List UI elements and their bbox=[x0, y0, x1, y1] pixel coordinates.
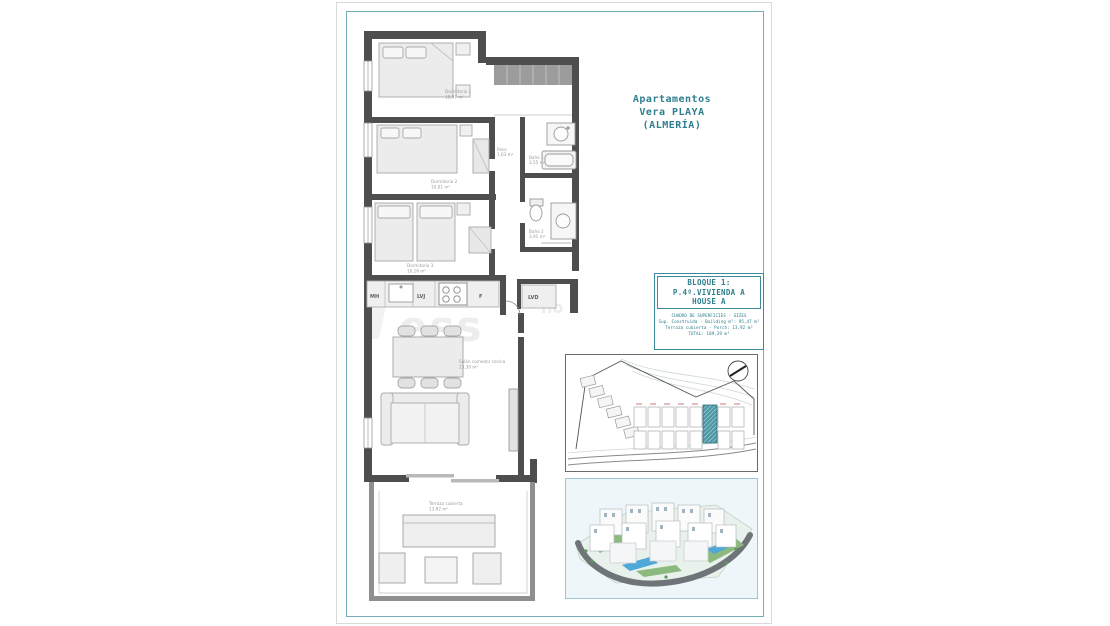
floor-plan-drawing: ess no bbox=[351, 23, 591, 611]
surface-table: CUADRO DE SUPERFICIES - SIZES Sup. Const… bbox=[655, 311, 763, 338]
terrace-furniture bbox=[379, 515, 501, 584]
hall-wardrobe bbox=[494, 65, 572, 115]
laundry-nook: LVD bbox=[522, 285, 556, 308]
project-title: Apartamentos Vera PLAYA (ALMERÍA) bbox=[592, 93, 752, 132]
paso-label: Paso 1,63 m² bbox=[497, 147, 514, 157]
terrace-label: Terraza cubierta 13,92 m² bbox=[428, 501, 463, 512]
svg-text:3,55 m²: 3,55 m² bbox=[529, 160, 546, 165]
highlighted-unit bbox=[703, 405, 717, 443]
bedroom2-label: Dormitorio 2 10,01 m² bbox=[431, 179, 458, 190]
unit-header: BLOQUE 1: P.4º.VIVIENDA A HOUSE A bbox=[657, 276, 761, 309]
project-title-line3: (ALMERÍA) bbox=[592, 119, 752, 132]
svg-text:10,01 m²: 10,01 m² bbox=[431, 185, 450, 190]
svg-text:10,97 m²: 10,97 m² bbox=[445, 95, 464, 100]
appliance-label-mh: MH bbox=[370, 294, 379, 300]
svg-text:Dormitorio 2: Dormitorio 2 bbox=[431, 179, 458, 184]
svg-text:1,63 m²: 1,63 m² bbox=[497, 152, 514, 157]
svg-text:Terraza cubierta: Terraza cubierta bbox=[428, 501, 463, 506]
bath1-label: Baño 1 3,55 m² bbox=[529, 155, 546, 165]
living-label: Salón comedor cocina 23,30 m² bbox=[459, 359, 506, 370]
surface-built: Sup. Construida - Building m²: 95,47 m² bbox=[655, 320, 763, 326]
unit-floor-label: P.4º.VIVIENDA A bbox=[658, 288, 760, 298]
sliding-door bbox=[406, 474, 499, 483]
dining-set bbox=[393, 326, 463, 388]
appliance-label-f: F bbox=[479, 294, 482, 300]
surface-table-title: CUADRO DE SUPERFICIES - SIZES bbox=[655, 314, 763, 320]
appliance-label-lvj: LVJ bbox=[417, 294, 425, 300]
bedroom3-furniture bbox=[375, 203, 491, 261]
tv-sideboard bbox=[509, 389, 518, 451]
svg-text:Dormitorio 3: Dormitorio 3 bbox=[407, 263, 434, 268]
svg-text:23,30 m²: 23,30 m² bbox=[459, 365, 478, 370]
appliance-label-lvd: LVD bbox=[528, 295, 539, 301]
bedroom3-label: Dormitorio 3 10,16 m² bbox=[407, 263, 434, 274]
project-title-line2: Vera PLAYA bbox=[592, 106, 752, 119]
svg-text:3,91 m²: 3,91 m² bbox=[529, 234, 546, 239]
project-title-line1: Apartamentos bbox=[592, 93, 752, 106]
svg-text:13,92 m²: 13,92 m² bbox=[429, 507, 448, 512]
surface-terrace: Terraza cubierta - Porch: 13,92 m² bbox=[655, 326, 763, 332]
surface-total: TOTAL: 109,39 m² bbox=[655, 332, 763, 338]
bedroom2-furniture bbox=[377, 125, 489, 173]
svg-text:Dormitorio 1: Dormitorio 1 bbox=[445, 89, 472, 94]
north-arrow-icon bbox=[728, 361, 748, 381]
unit-block-label: BLOQUE 1: bbox=[658, 278, 760, 288]
unit-house-label: HOUSE A bbox=[658, 297, 760, 307]
document-page: ess no bbox=[336, 2, 772, 624]
kitchen-counter: MH LVJ F bbox=[367, 281, 499, 307]
aerial-render-thumbnail bbox=[565, 478, 758, 599]
left-building-cluster bbox=[580, 368, 639, 446]
site-plan-thumbnail bbox=[565, 354, 758, 472]
unit-info-box: BLOQUE 1: P.4º.VIVIENDA A HOUSE A CUADRO… bbox=[654, 273, 764, 350]
unit-rows bbox=[634, 407, 744, 449]
svg-text:10,16 m²: 10,16 m² bbox=[407, 269, 426, 274]
bath2-label: Baño 2 3,91 m² bbox=[529, 229, 546, 239]
sofa bbox=[381, 393, 469, 445]
bath1-fixtures bbox=[542, 123, 576, 169]
svg-text:Salón comedor cocina: Salón comedor cocina bbox=[459, 359, 506, 364]
